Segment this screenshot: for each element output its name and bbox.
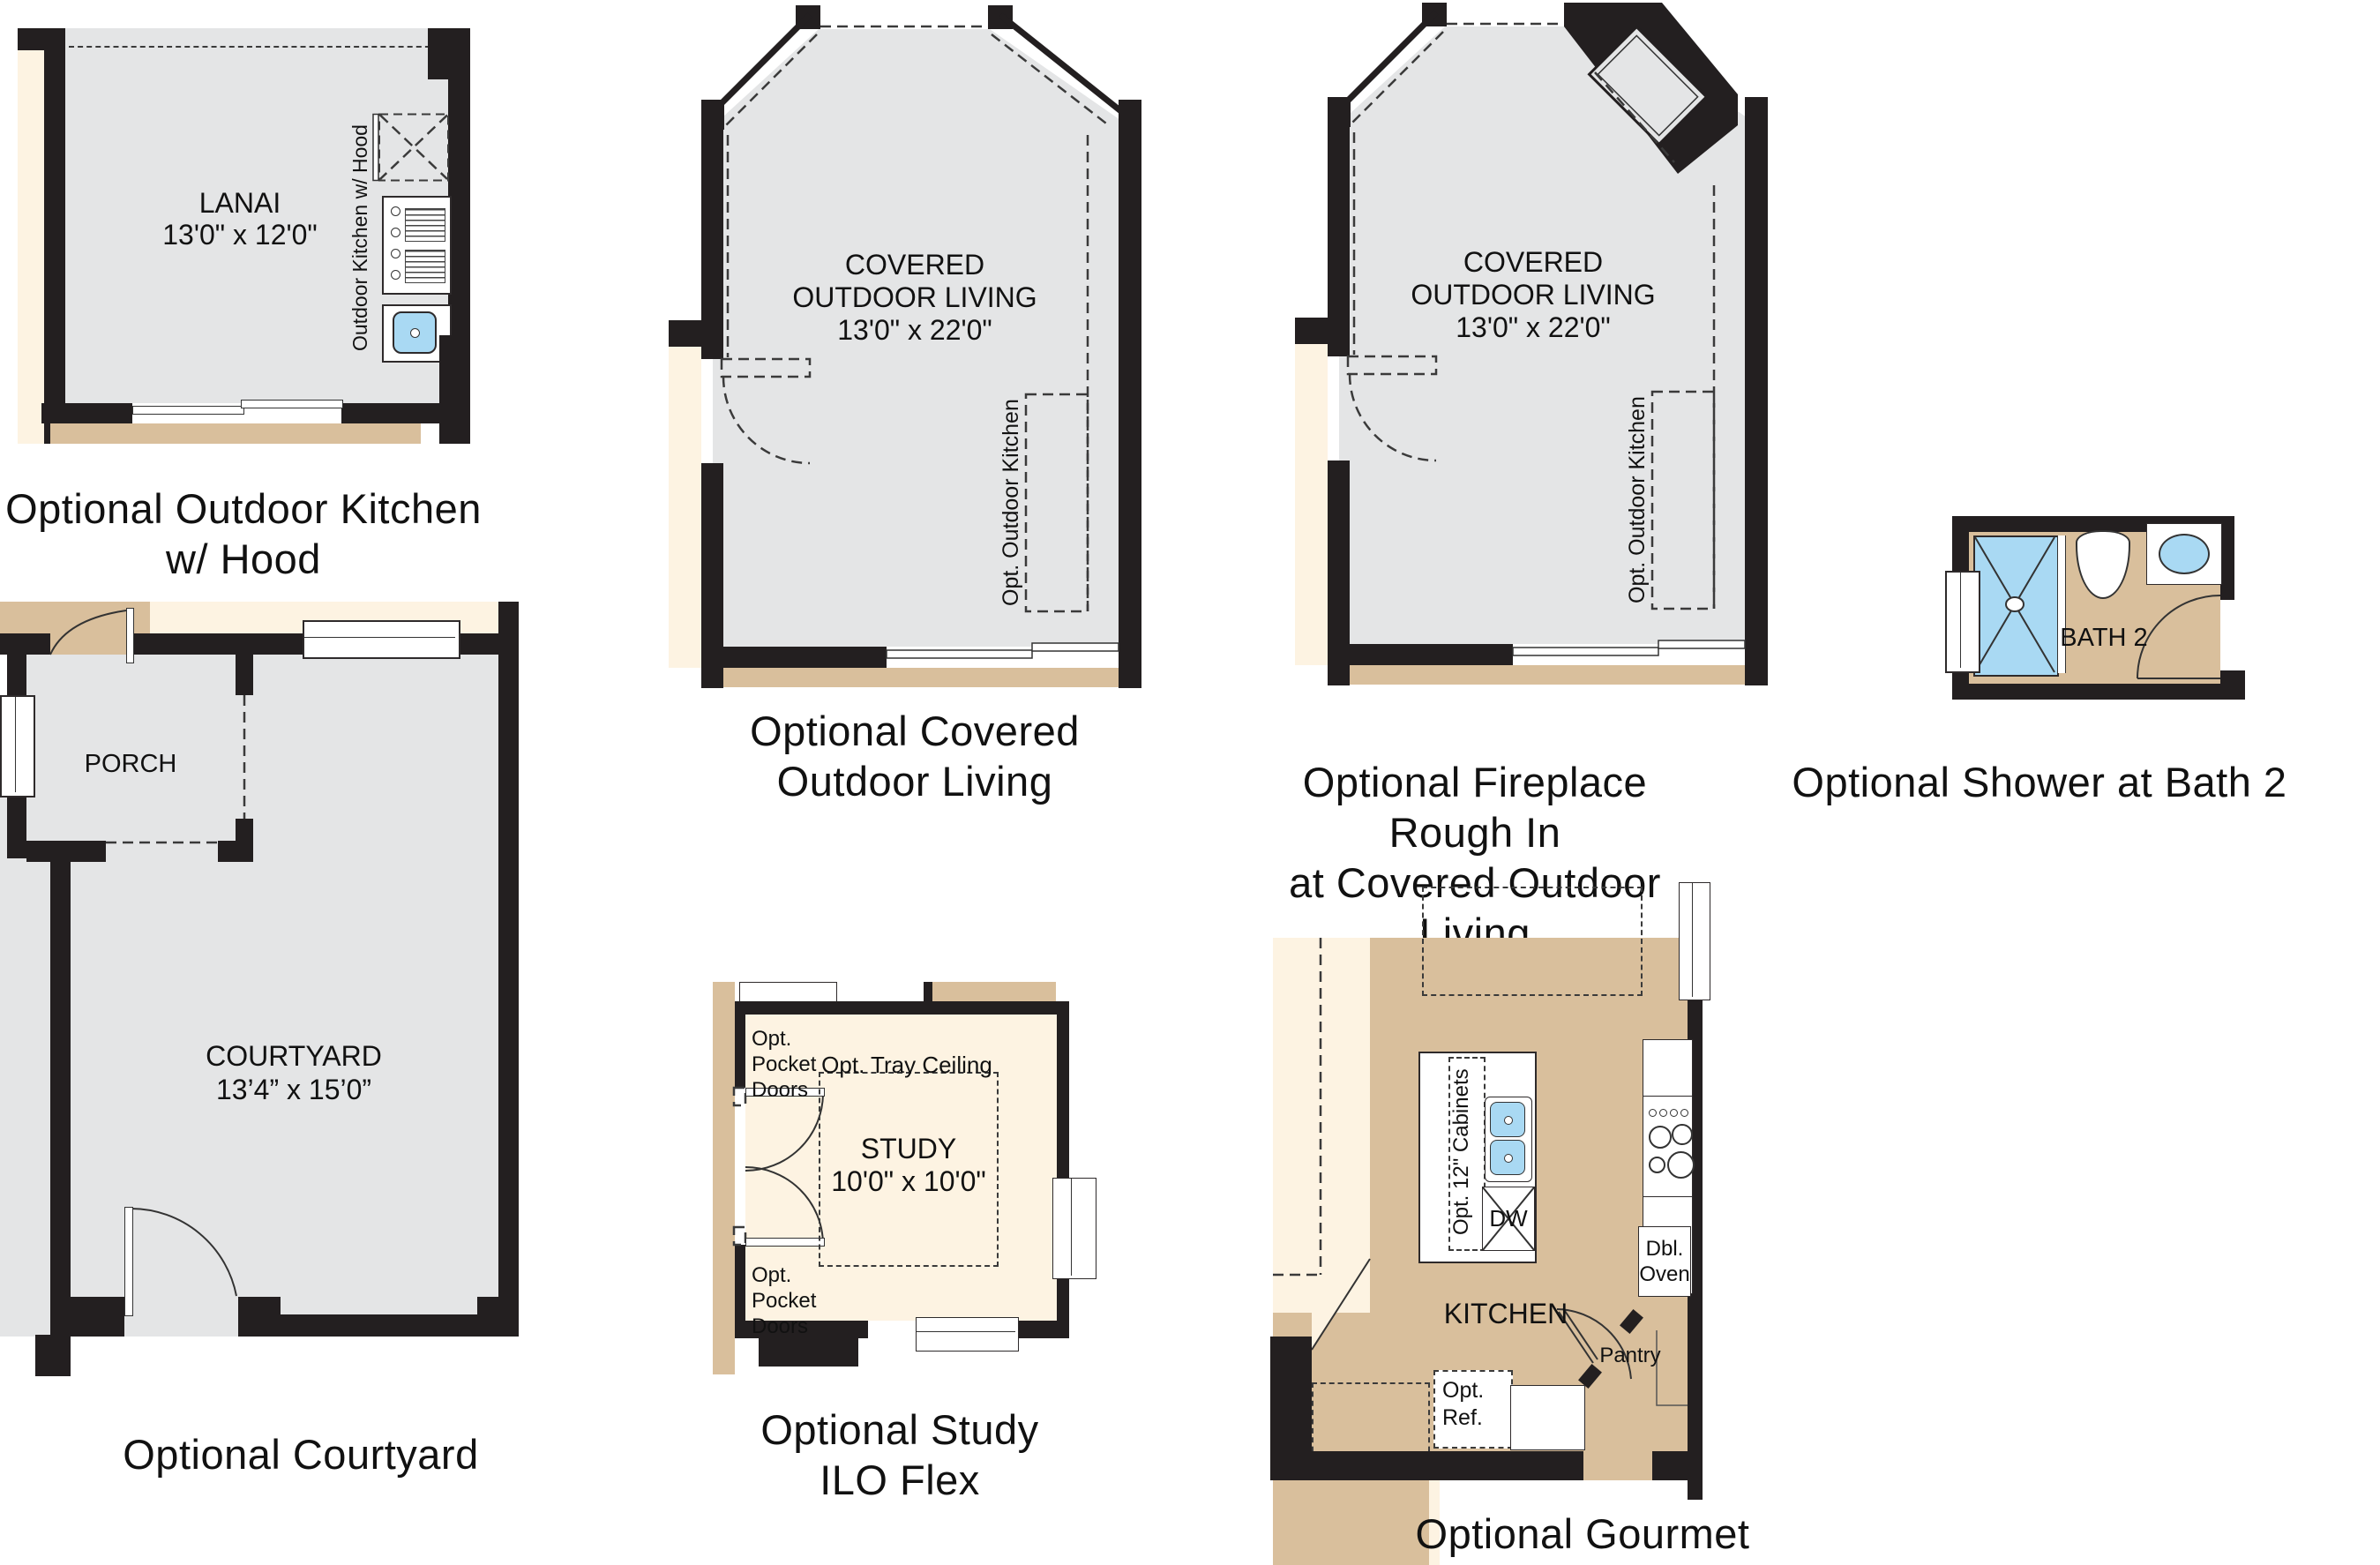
floor-break-line xyxy=(1312,1259,1370,1350)
room-name: COVERED xyxy=(1361,246,1705,279)
grill-grate xyxy=(405,208,445,242)
sink-basin xyxy=(1490,1140,1525,1175)
decor-shape xyxy=(1745,97,1768,127)
cooktop-knob xyxy=(1649,1109,1657,1117)
burner xyxy=(1649,1157,1665,1173)
sliding-door-panel xyxy=(132,406,244,415)
caption-study: Optional Study ILO Flex xyxy=(662,1404,1138,1505)
wall-segment xyxy=(41,403,132,423)
sink-basin xyxy=(1490,1102,1525,1137)
burner xyxy=(1667,1151,1695,1179)
pocket-door-dashed xyxy=(734,1227,745,1245)
decor-shape xyxy=(1328,127,1350,356)
vanity-counter xyxy=(2146,523,2222,585)
decor-shape xyxy=(1119,130,1141,650)
room-label-bath2: BATH 2 xyxy=(2033,624,2174,653)
opt-zone-dashed xyxy=(1312,1382,1430,1461)
caption-gourmet-kitchen: Optional Gourmet Kitchen xyxy=(1340,1509,1825,1565)
room-label-lanai: LANAI 13'0" x 12'0" xyxy=(130,187,350,251)
decor-shape xyxy=(1745,644,1768,685)
island-sink xyxy=(1485,1097,1532,1182)
decor-shape xyxy=(1658,640,1745,648)
opt-outdoor-kitchen-label: Opt. Outdoor Kitchen xyxy=(1625,386,1651,615)
patio-strip xyxy=(50,423,421,444)
window xyxy=(1945,571,1980,673)
grill-icon xyxy=(382,196,452,295)
dishwasher: DW xyxy=(1482,1187,1535,1251)
pocket-doors-label: Opt. Pocket Doors xyxy=(752,1026,849,1103)
sink-basin xyxy=(393,311,437,354)
burner xyxy=(1672,1124,1693,1145)
caption-shower-bath2: Optional Shower at Bath 2 xyxy=(1713,757,2366,807)
decor-shape xyxy=(1350,644,1513,665)
decor-shape xyxy=(1032,643,1119,651)
wall-segment xyxy=(428,28,470,79)
wall-segment xyxy=(281,1314,481,1337)
outdoor-kitchen-label: Outdoor Kitchen w/ Hood xyxy=(348,101,372,375)
plan-covered-outdoor-living: COVERED OUTDOOR LIVING 13'0" x 22'0" Opt… xyxy=(669,3,1149,691)
decor-shape xyxy=(1328,644,1350,685)
pantry-floor xyxy=(1583,1451,1652,1480)
room-dims: 13’4” x 15’0” xyxy=(161,1073,426,1106)
grill-grate xyxy=(405,250,445,283)
decor-shape xyxy=(1513,648,1658,655)
counter xyxy=(1510,1385,1585,1450)
room-name: OUTDOOR LIVING xyxy=(743,281,1087,314)
room-label-kitchen: KITCHEN xyxy=(1418,1298,1594,1330)
door-swing-arc xyxy=(131,1209,236,1296)
decor-shape xyxy=(1295,344,1328,665)
room-dims: 13'0" x 12'0" xyxy=(130,219,350,251)
courtyard-linework xyxy=(0,602,529,1378)
grill-knob xyxy=(391,228,400,237)
room-label-porch: PORCH xyxy=(60,750,201,779)
dishwasher-label: DW xyxy=(1483,1206,1534,1232)
window xyxy=(1679,882,1710,1000)
plan-courtyard: PORCH COURTYARD 13’4” x 15’0” xyxy=(0,602,529,1378)
grill-knob xyxy=(391,249,400,258)
pocket-door-dashed xyxy=(734,1088,745,1105)
decor-shape xyxy=(379,115,448,181)
wall-segment xyxy=(236,655,253,695)
plan-gourmet-kitchen: Dbl. Oven Opt. 12" Cabinets DW Pantry Op… xyxy=(1273,882,1714,1565)
exterior-strip xyxy=(18,50,44,444)
plan-shower-bath2: BATH 2 xyxy=(1945,516,2245,700)
grill-knob xyxy=(391,270,400,280)
decor-shape xyxy=(1119,647,1141,688)
covered-outdoor-living-drawing xyxy=(669,3,1149,691)
double-oven: Dbl. Oven xyxy=(1638,1226,1691,1297)
wall-segment xyxy=(50,858,71,1337)
door-swing-arc xyxy=(50,610,126,655)
sink-drain xyxy=(1504,1116,1513,1125)
decor-shape xyxy=(1328,97,1351,127)
room-name: LANAI xyxy=(130,187,350,219)
decor-shape xyxy=(1119,100,1141,130)
window-mullion xyxy=(1071,1179,1072,1276)
window xyxy=(0,695,35,797)
refrigerator: Opt. Ref. xyxy=(1433,1370,1513,1449)
room-label-covered-outdoor-living: COVERED OUTDOOR LIVING 13'0" x 22'0" xyxy=(1361,246,1705,344)
window xyxy=(916,1317,1019,1352)
pocket-doors-label: Opt. Pocket Doors xyxy=(752,1262,849,1339)
decor-shape xyxy=(1745,127,1768,648)
window-mullion xyxy=(1692,883,1693,997)
decor-shape xyxy=(723,647,887,668)
caption-courtyard: Optional Courtyard xyxy=(63,1429,539,1479)
decor-shape xyxy=(887,650,1032,658)
door-leaf xyxy=(745,1238,825,1247)
window-mullion xyxy=(917,1331,1015,1332)
window-mullion xyxy=(15,697,16,792)
wall-segment xyxy=(238,1297,281,1337)
plan-optional-outdoor-kitchen: Outdoor Kitchen w/ Hood LANAI 13'0" x 12… xyxy=(18,28,470,444)
wall-segment xyxy=(44,50,65,444)
window xyxy=(1052,1178,1096,1279)
decor-shape xyxy=(1350,665,1745,685)
wall-segment xyxy=(1312,1451,1583,1480)
opt-cabinets-label: Opt. 12" Cabinets xyxy=(1448,1057,1482,1247)
wall-segment xyxy=(236,819,253,862)
cooktop-knob xyxy=(1659,1109,1667,1117)
decor-shape xyxy=(701,130,723,359)
screen-opening-dashed xyxy=(69,46,439,48)
wall-segment xyxy=(341,403,439,423)
room-dims: 10'0" x 10'0" xyxy=(798,1165,1019,1198)
fireplace-outdoor-living-drawing xyxy=(1295,0,1776,688)
opt-outdoor-kitchen-label: Opt. Outdoor Kitchen xyxy=(999,388,1025,618)
decor-shape xyxy=(701,100,724,130)
opt-cabinets-scope-dashed xyxy=(1422,887,1643,996)
wall-segment xyxy=(18,28,65,50)
cooktop-knob xyxy=(1680,1109,1688,1117)
room-name: OUTDOOR LIVING xyxy=(1361,279,1705,311)
room-dims: 13'0" x 22'0" xyxy=(743,314,1087,347)
wall-segment xyxy=(439,335,470,444)
sink-drain xyxy=(1504,1154,1513,1163)
room-name: COVERED xyxy=(743,249,1087,281)
decor-shape xyxy=(723,668,1119,687)
cooktop-knob xyxy=(1670,1109,1678,1117)
shower-drain xyxy=(2006,597,2024,611)
caption-covered-outdoor-living: Optional Covered Outdoor Living xyxy=(677,706,1153,806)
caption-outdoor-kitchen: Optional Outdoor Kitchen w/ Hood xyxy=(5,483,482,584)
vent-hood-icon xyxy=(372,113,450,183)
decor-shape xyxy=(1328,461,1350,648)
room-name: COURTYARD xyxy=(161,1039,426,1073)
vanity-sink xyxy=(2159,534,2210,574)
burner xyxy=(1649,1126,1672,1149)
wall-segment xyxy=(35,1335,71,1376)
decor-shape xyxy=(669,347,701,668)
room-label-study: STUDY 10'0" x 10'0" xyxy=(798,1133,1019,1198)
door-leaf xyxy=(124,1207,133,1316)
decor-shape xyxy=(373,115,378,181)
wall-segment xyxy=(1270,1337,1312,1480)
decor-shape xyxy=(701,647,723,688)
sliding-door-panel xyxy=(241,400,343,408)
floorplan-options-sheet: Outdoor Kitchen w/ Hood LANAI 13'0" x 12… xyxy=(0,0,2380,1565)
room-label-covered-outdoor-living: COVERED OUTDOOR LIVING 13'0" x 22'0" xyxy=(743,249,1087,347)
room-name: STUDY xyxy=(798,1133,1019,1165)
cooktop-icon xyxy=(1643,1096,1693,1197)
pantry-label: Pantry xyxy=(1590,1343,1670,1368)
wall-segment xyxy=(1652,1451,1703,1480)
wall-segment xyxy=(498,642,519,1337)
grill-knob xyxy=(391,206,400,216)
room-label-courtyard: COURTYARD 13’4” x 15’0” xyxy=(161,1039,426,1106)
wall-segment xyxy=(71,1297,124,1337)
plan-fireplace-rough-in: COVERED OUTDOOR LIVING 13'0" x 22'0" Opt… xyxy=(1295,0,1776,688)
sink-drain xyxy=(410,328,420,338)
decor-shape xyxy=(701,463,723,650)
window-mullion xyxy=(1960,573,1961,668)
room-dims: 13'0" x 22'0" xyxy=(1361,311,1705,344)
plan-study: Opt. Tray Ceiling Opt. Pocket Doors Opt.… xyxy=(713,977,1101,1383)
